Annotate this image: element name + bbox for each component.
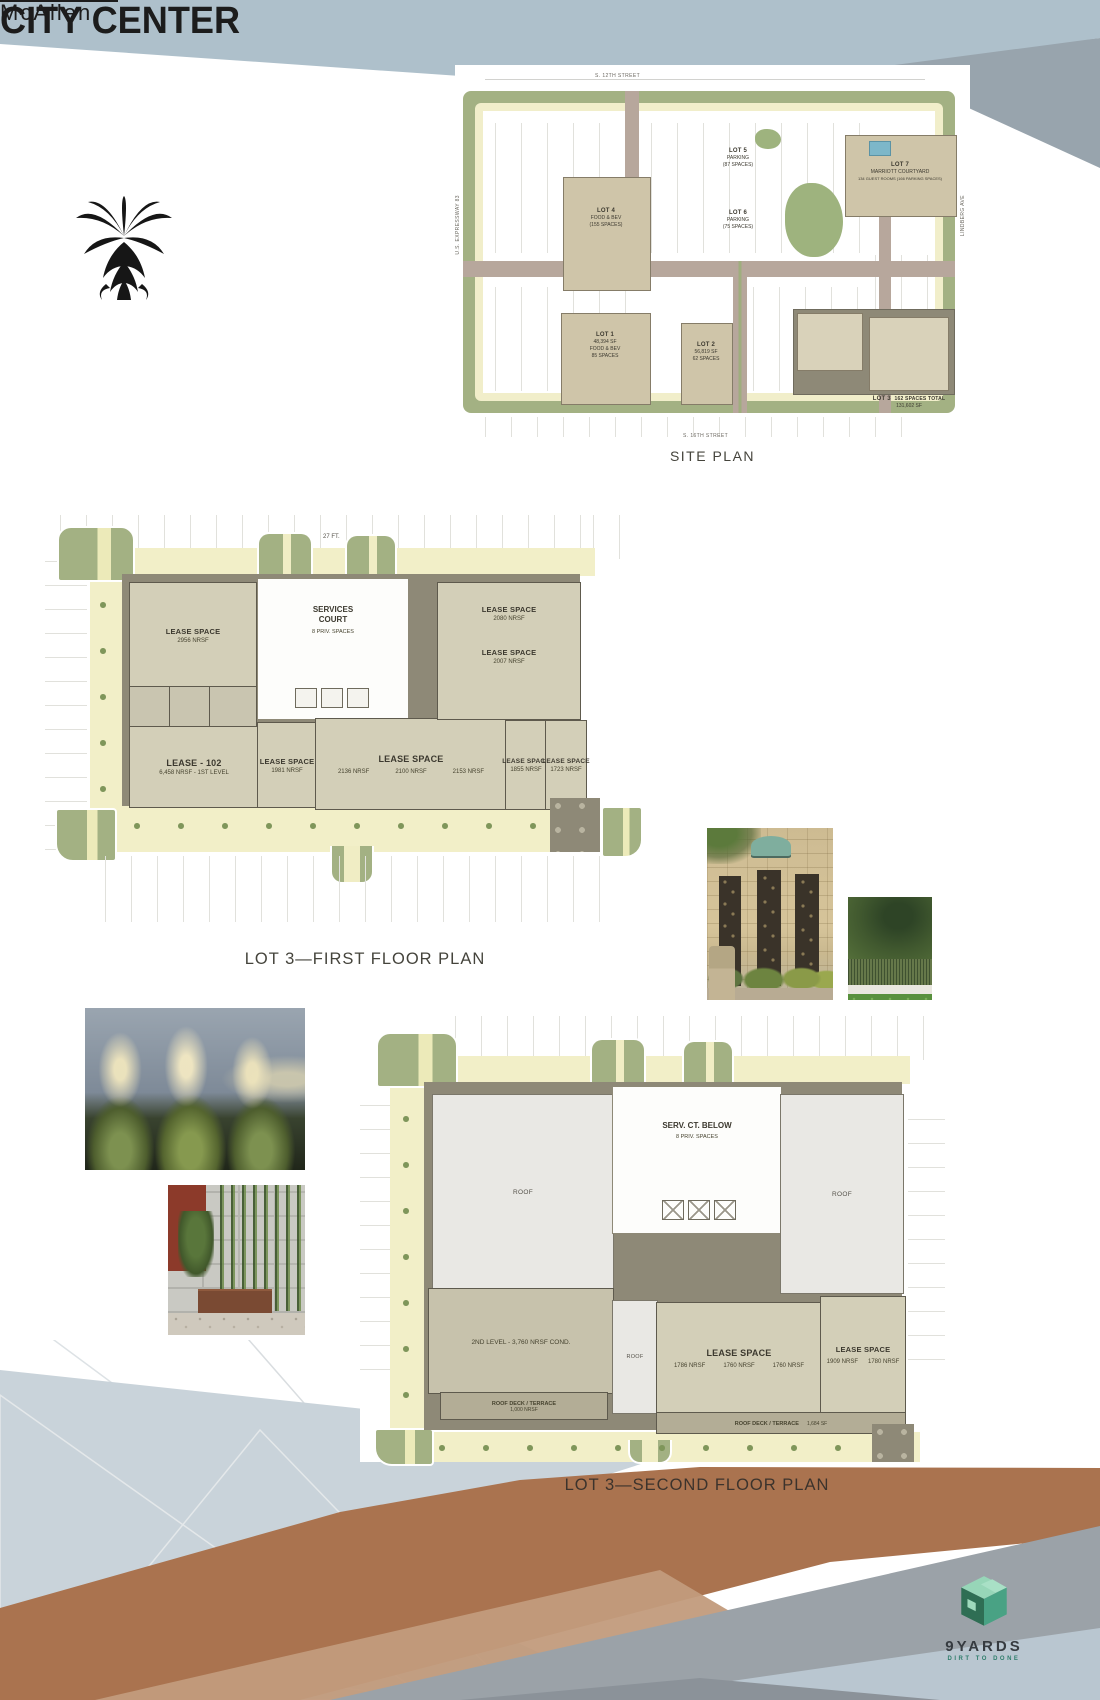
corner-planting (601, 806, 643, 858)
lease-space-1855: LEASE SPACE1855 NRSF (505, 720, 547, 810)
roof-deck-terrace-left: ROOF DECK / TERRACE 1,000 NRSF (440, 1392, 608, 1420)
parking-left (360, 1090, 390, 1370)
court-stall (347, 688, 369, 708)
lot7-label: LOT 7 MARRIOTT COURTYARD 134 GUEST ROOMS… (847, 161, 953, 181)
lot5-label: LOT 5 PARKING (87 SPACES) (695, 147, 781, 169)
court-stall (714, 1200, 736, 1220)
parking-left (45, 560, 87, 850)
street-top-label: S. 12TH STREET (595, 73, 640, 79)
court-stall (662, 1200, 684, 1220)
lot2-building (681, 323, 733, 405)
site-plan: LOT 4 FOOD & BEV (155 SPACES) LOT 5 PARK… (455, 65, 970, 443)
street-bottom-label: S. 16TH STREET (683, 433, 728, 439)
corner-planting (55, 808, 117, 862)
shrub (178, 1211, 214, 1277)
tree-column (97, 582, 111, 802)
court-stall (321, 688, 343, 708)
court-stall (688, 1200, 710, 1220)
palm-tree-logo-icon (76, 196, 172, 300)
lot3-label: LOT 3 162 SPACES TOTAL 131,602 SF (859, 395, 959, 410)
green-space (755, 129, 781, 149)
lot6-label: LOT 6 PARKING (75 SPACES) (695, 209, 781, 231)
dimension-note: 27 FT. (323, 534, 340, 540)
roof-middle: ROOF (612, 1300, 658, 1414)
court-stall (295, 688, 317, 708)
street-left-label: U.S. EXPRESSWAY 83 (455, 195, 461, 255)
lot1-label: LOT 1 48,394 SF FOOD & BEV 85 SPACES (561, 331, 649, 359)
lease-space-right: LEASE SPACE 1909 NRSF 1780 NRSF (820, 1296, 906, 1414)
lot3-building-wing (797, 313, 863, 371)
lease-space-1723: LEASE SPACE1723 NRSF (545, 720, 587, 810)
street-right-label: LINDBERG AVE (960, 195, 966, 236)
parking-top-right (593, 515, 638, 559)
rusted-planter (198, 1289, 272, 1315)
photo-stone-wall (707, 828, 833, 1008)
planting-bump (345, 534, 397, 576)
photo-ornamental-grasses (85, 1008, 305, 1170)
gravel-floor (168, 1313, 305, 1335)
lease-space-mid: LEASE SPACE 2136 NRSF 2100 NRSF 2153 NRS… (315, 718, 507, 810)
planting-bump (682, 1040, 734, 1084)
tree-row (420, 1442, 890, 1454)
lot4-label: LOT 4 FOOD & BEV (155 SPACES) (563, 207, 649, 229)
second-floor-plan: ROOF SERV. CT. BELOW 8 PRIV. SPACES ROOF… (360, 1000, 945, 1462)
green-space (785, 183, 843, 257)
tree-row (115, 820, 575, 834)
site-plan-caption: SITE PLAN (455, 448, 970, 464)
second-level-condo: 2ND LEVEL - 3,760 NRSF COND. (428, 1288, 614, 1394)
lot3-building-wing (869, 317, 949, 391)
road-vertical-b (733, 261, 747, 413)
photo-bamboo-planter (168, 1185, 305, 1335)
nine-yards-tagline: DIRT TO DONE (938, 1656, 1030, 1662)
dimension-line (485, 79, 925, 80)
lot2-label: LOT 2 56,819 SF 62 SPACES (681, 341, 731, 363)
tree-canopy (848, 897, 932, 961)
lease-space-2956: LEASE SPACE2956 NRSF (129, 582, 257, 688)
page: McAllen CITY CENTER LOT 4 FOOD & BEV (15… (0, 0, 1100, 1700)
lease-102: LEASE - 1026,458 NRSF - 1ST LEVEL (129, 726, 259, 808)
plaza-corner (550, 798, 600, 852)
patio-chair (709, 946, 735, 1002)
path-strip (848, 985, 932, 994)
roof-deck-terrace-right: ROOF DECK / TERRACE 1,684 SF (656, 1412, 906, 1434)
corner-planting (376, 1032, 458, 1088)
tall-grass-band (848, 959, 932, 985)
lease-space-mid: LEASE SPACE 1786 NRSF 1760 NRSF 1760 NRS… (656, 1302, 822, 1414)
tree-column (400, 1096, 414, 1416)
planting-bump (590, 1038, 646, 1084)
second-floor-caption: LOT 3—SECOND FLOOR PLAN (497, 1476, 897, 1495)
back-of-house-rooms (129, 686, 257, 728)
parking-right (908, 1100, 945, 1360)
plaza-corner (872, 1424, 914, 1462)
nine-yards-wordmark: 9YARDS (938, 1638, 1030, 1655)
roof-left: ROOF (432, 1094, 614, 1290)
first-floor-plan: SERVICESCOURT 8 PRIV. SPACES LEASE SPACE… (45, 490, 640, 945)
sidewalk-top (390, 1056, 910, 1084)
first-floor-caption: LOT 3—FIRST FLOOR PLAN (165, 950, 565, 969)
photo-hedge-landscape (848, 897, 932, 1013)
planting-bump (257, 532, 313, 576)
lease-space-right-column: LEASE SPACE2080 NRSF LEASE SPACE2007 NRS… (437, 582, 581, 720)
sidewalk-top (90, 548, 595, 576)
nine-yards-logo-icon (953, 1572, 1015, 1634)
parking-bottom (105, 856, 605, 922)
lease-space-1981: LEASE SPACE1981 NRSF (257, 722, 317, 808)
lot4-building (563, 177, 651, 291)
pendant-light (751, 836, 791, 856)
roof-right: ROOF (780, 1094, 904, 1294)
lot7-pool (869, 141, 891, 156)
brand-name-main: CITY CENTER (0, 0, 240, 43)
